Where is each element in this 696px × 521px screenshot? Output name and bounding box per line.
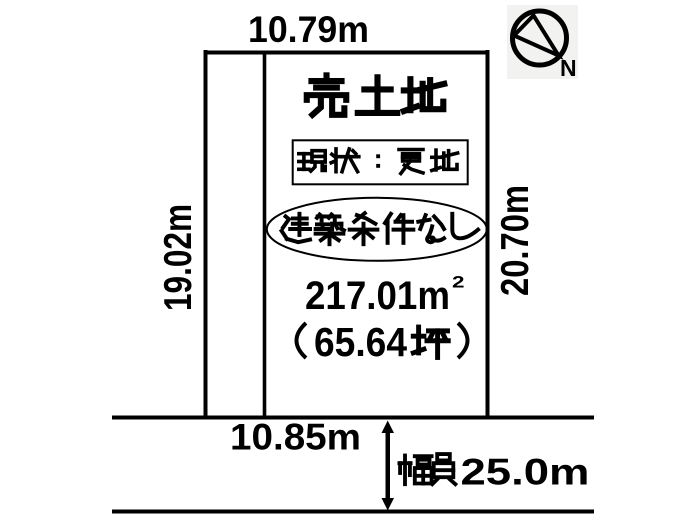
svg-text:2: 2 xyxy=(452,273,465,292)
svg-text:10.79m: 10.79m xyxy=(248,9,369,50)
svg-text:217.01m: 217.01m xyxy=(305,274,450,318)
svg-text:25.0m: 25.0m xyxy=(461,451,590,493)
svg-text:19.02m: 19.02m xyxy=(157,204,200,311)
svg-text:65.64: 65.64 xyxy=(314,319,407,365)
svg-text:N: N xyxy=(560,55,577,81)
svg-text:10.85m: 10.85m xyxy=(230,417,361,458)
svg-text:20.70m: 20.70m xyxy=(494,185,537,296)
